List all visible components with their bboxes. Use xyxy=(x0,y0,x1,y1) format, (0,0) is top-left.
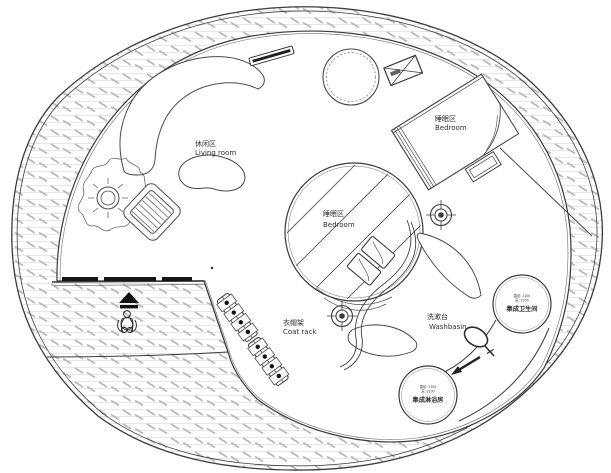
label-coat-rack-en: Coat rack xyxy=(283,328,317,336)
door-track-segment xyxy=(62,277,98,281)
label-washbasin-en: Washbasin xyxy=(429,323,467,331)
bathroom-pod-spec-1: 直径: 1100 xyxy=(514,293,531,298)
bathroom-pod-name: 集成卫生间 xyxy=(506,305,538,313)
label-living-room-en: Living room xyxy=(195,149,236,157)
label-washbasin-zh: 洗漱台 xyxy=(427,312,448,321)
label-bedroom-upper-en: Bedroom xyxy=(435,124,467,132)
shower-pod-name: 集成淋浴房 xyxy=(412,396,444,404)
label-bedroom-center-zh: 睡眠区 xyxy=(323,210,344,218)
shower-pod-spec-2: 高: 2100 xyxy=(421,389,434,394)
label-bedroom-center-en: Bedroom xyxy=(323,221,355,229)
label-bedroom-upper-zh: 睡眠区 xyxy=(435,115,456,123)
shower-pod-spec-1: 直径: 1100 xyxy=(420,384,437,389)
label-living-room-zh: 休闲区 xyxy=(195,139,216,148)
door-track-segment xyxy=(104,277,156,281)
bathroom-pod-spec-2: 高: 2100 xyxy=(515,298,528,303)
label-coat-rack-zh: 衣帽架 xyxy=(283,318,304,327)
round-table xyxy=(323,49,379,105)
floor-plan: 休闲区 Living room 睡眠区 Bedroom xyxy=(0,0,611,473)
dot-mark xyxy=(211,267,213,269)
shower-pod: 直径: 1100 高: 2100 集成淋浴房 xyxy=(399,366,457,424)
bathroom-pod: 直径: 1100 高: 2100 集成卫生间 xyxy=(493,275,551,333)
floor-plan-svg: 休闲区 Living room 睡眠区 Bedroom xyxy=(0,0,611,473)
deck-top-wall xyxy=(52,281,204,282)
door-track-segment xyxy=(162,277,192,281)
